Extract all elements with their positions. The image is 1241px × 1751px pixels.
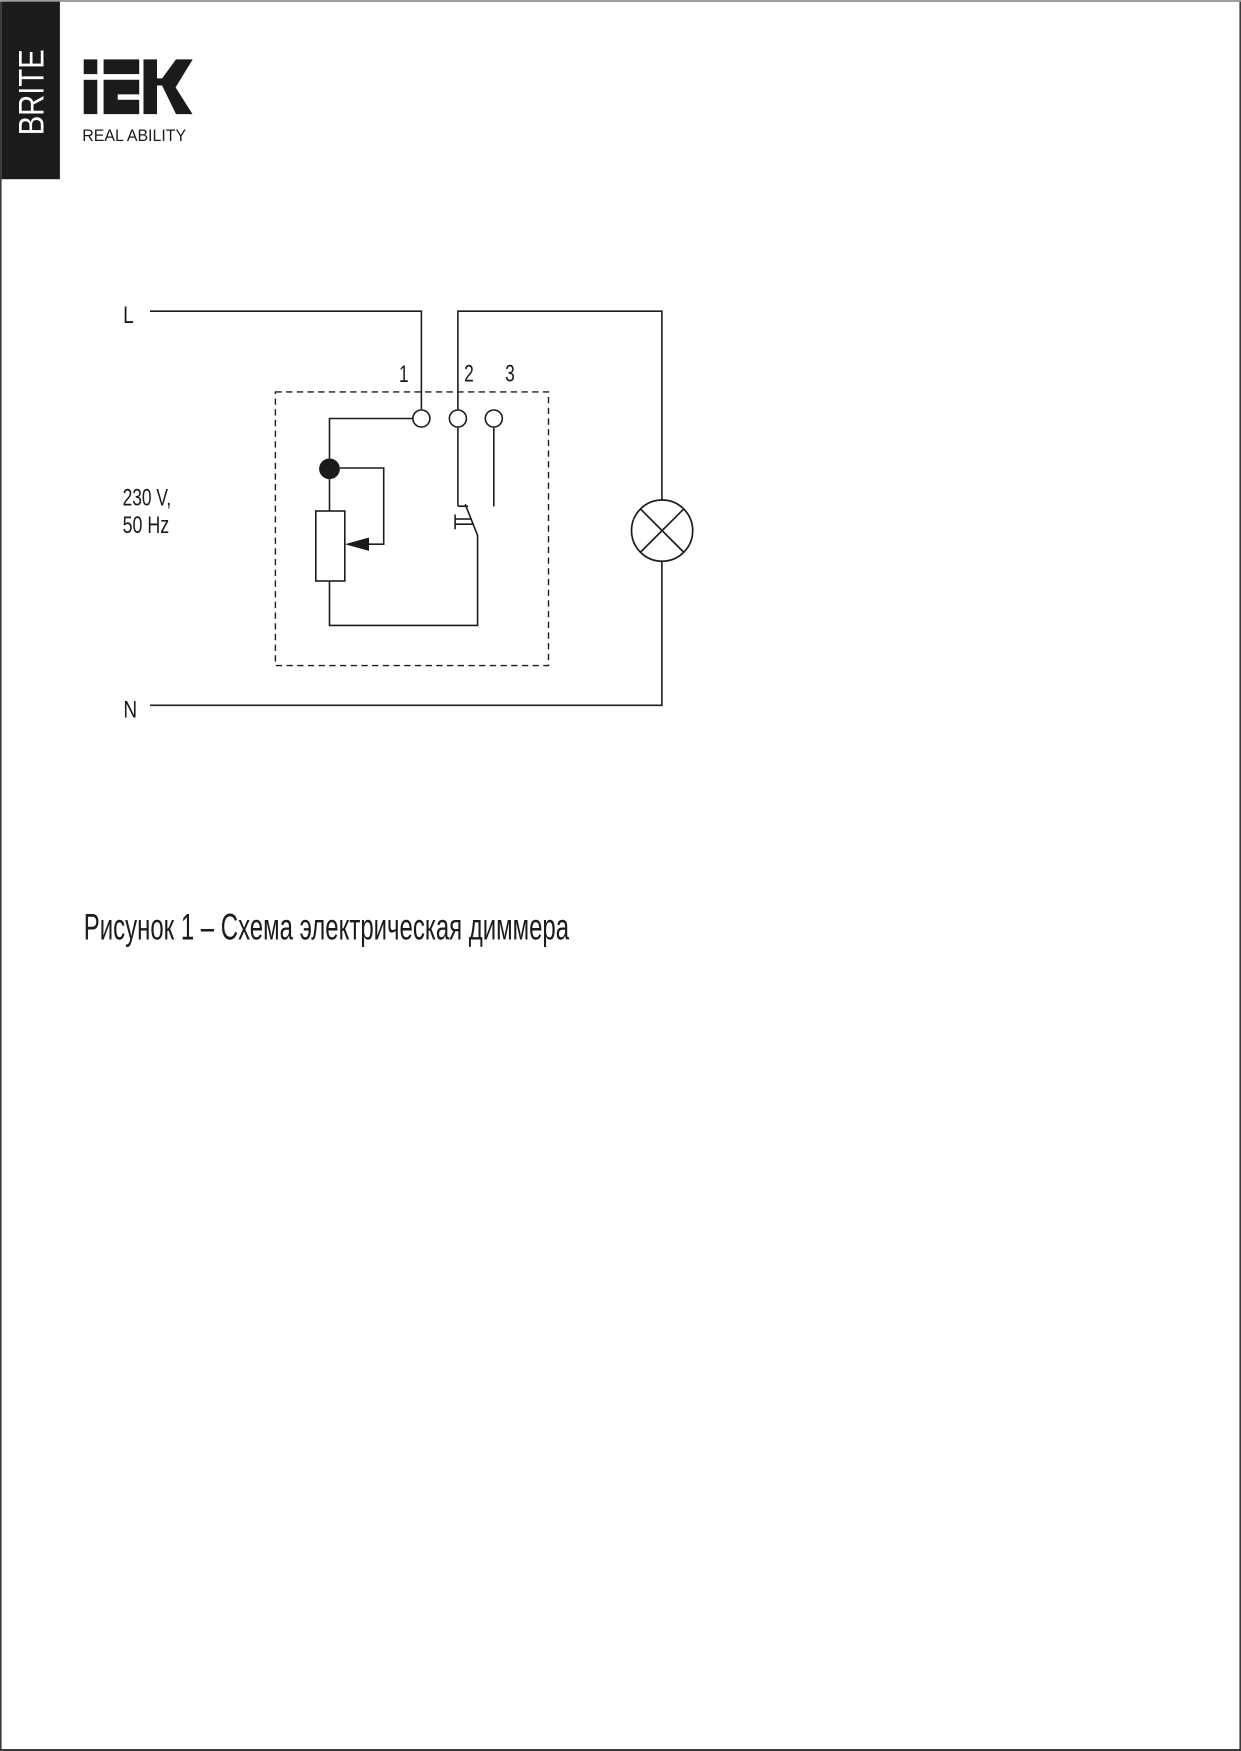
svg-text:REAL ABILITY: REAL ABILITY [82, 126, 186, 145]
svg-text:2: 2 [464, 361, 474, 387]
svg-text:L: L [123, 301, 134, 329]
svg-text:1: 1 [399, 361, 409, 387]
svg-text:Рисунок 1 – Схема электрическа: Рисунок 1 – Схема электрическая диммера [84, 906, 570, 948]
svg-text:50 Hz: 50 Hz [123, 513, 170, 539]
svg-text:230 V,: 230 V, [123, 485, 172, 511]
svg-text:BRITE: BRITE [12, 49, 51, 135]
svg-text:3: 3 [505, 361, 515, 387]
svg-text:N: N [123, 695, 137, 723]
